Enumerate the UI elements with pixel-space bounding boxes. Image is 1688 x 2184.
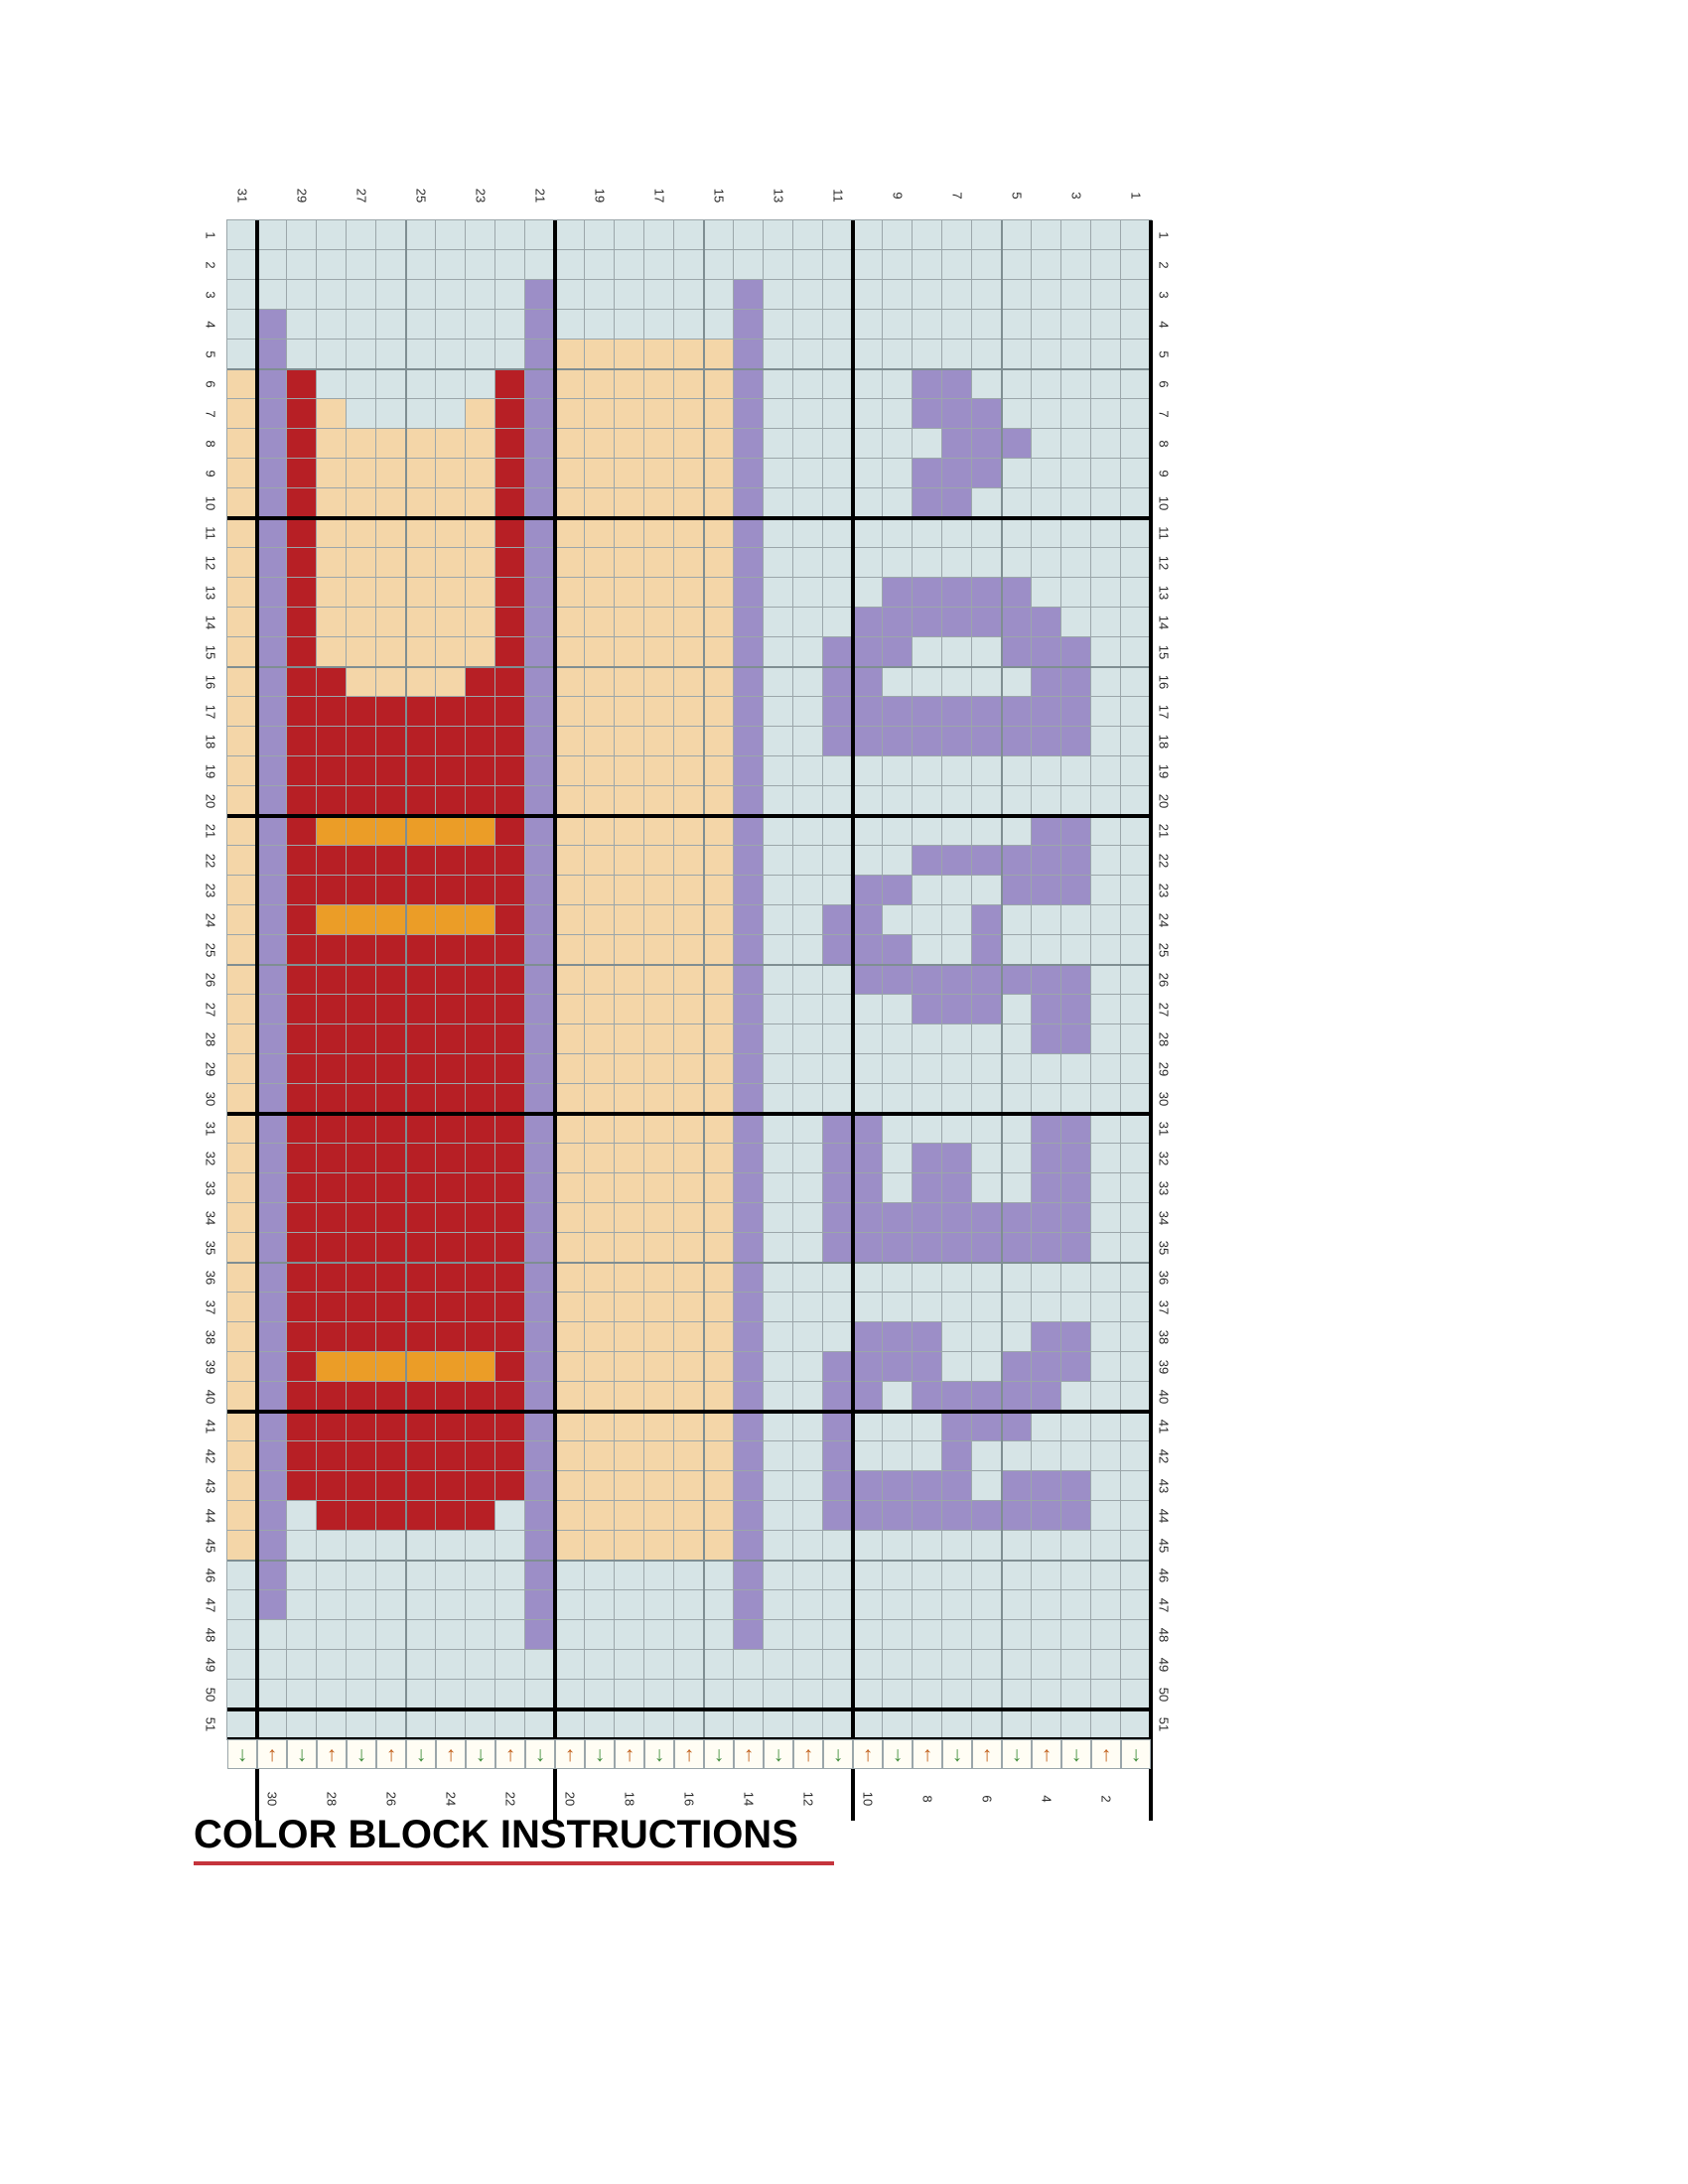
chart-cell-purple bbox=[853, 727, 883, 756]
chart-cell-purple bbox=[1061, 727, 1091, 756]
chart-cell-light-blue-background bbox=[1121, 250, 1151, 280]
chart-cell-purple bbox=[525, 905, 555, 935]
chart-cell-light-blue-background bbox=[883, 488, 913, 518]
chart-cell-light-blue-background bbox=[674, 1680, 704, 1709]
chart-cell-cream-peach bbox=[644, 1412, 674, 1441]
chart-cell-dark-red bbox=[287, 697, 317, 727]
chart-cell-cream-peach bbox=[615, 1114, 644, 1144]
chart-cell-dark-red bbox=[466, 965, 495, 995]
chart-cell-light-blue-background bbox=[823, 429, 853, 459]
chart-cell-purple bbox=[853, 1501, 883, 1531]
right-row-label: 10 bbox=[1157, 496, 1172, 510]
left-row-label: 31 bbox=[204, 1122, 218, 1136]
chart-cell-light-blue-background bbox=[972, 369, 1002, 399]
right-row-label: 21 bbox=[1157, 824, 1172, 838]
chart-cell-purple bbox=[823, 1382, 853, 1412]
chart-cell-purple bbox=[257, 1084, 287, 1114]
chart-cell-purple bbox=[1032, 1382, 1061, 1412]
chart-cell-light-blue-background bbox=[883, 340, 913, 369]
chart-cell-purple bbox=[972, 1412, 1002, 1441]
chart-cell-purple bbox=[883, 935, 913, 965]
chart-cell-light-blue-background bbox=[1121, 1590, 1151, 1620]
chart-cell-light-blue-background bbox=[913, 1084, 942, 1114]
chart-cell-light-blue-background bbox=[436, 250, 466, 280]
chart-cell-cream-peach bbox=[227, 1233, 257, 1263]
left-row-label: 29 bbox=[204, 1062, 218, 1076]
chart-cell-purple bbox=[913, 995, 942, 1024]
chart-cell-dark-red bbox=[406, 697, 436, 727]
chart-cell-cream-peach bbox=[644, 369, 674, 399]
chart-cell-purple bbox=[734, 1024, 764, 1054]
chart-cell-cream-peach bbox=[674, 518, 704, 548]
chart-cell-light-blue-background bbox=[764, 876, 793, 905]
chart-cell-light-blue-background bbox=[436, 1561, 466, 1590]
chart-cell-light-blue-background bbox=[764, 1412, 793, 1441]
chart-cell-light-blue-background bbox=[1061, 369, 1091, 399]
chart-cell-purple bbox=[1002, 429, 1032, 459]
chart-cell-cream-peach bbox=[615, 816, 644, 846]
chart-cell-cream-peach bbox=[704, 786, 734, 816]
chart-cell-purple bbox=[734, 340, 764, 369]
chart-cell-cream-peach bbox=[704, 1322, 734, 1352]
chart-cell-light-blue-background bbox=[942, 1680, 972, 1709]
chart-cell-dark-red bbox=[406, 1114, 436, 1144]
chart-cell-cream-peach bbox=[347, 578, 376, 608]
chart-cell-light-blue-background bbox=[913, 220, 942, 250]
left-row-label: 40 bbox=[204, 1390, 218, 1404]
chart-cell-light-blue-background bbox=[585, 1561, 615, 1590]
chart-cell-purple bbox=[1002, 1233, 1032, 1263]
chart-cell-light-blue-background bbox=[972, 1441, 1002, 1471]
chart-cell-light-blue-background bbox=[853, 488, 883, 518]
chart-cell-light-blue-background bbox=[347, 369, 376, 399]
chart-cell-light-blue-background bbox=[823, 578, 853, 608]
chart-cell-cream-peach bbox=[555, 518, 585, 548]
chart-cell-light-blue-background bbox=[1061, 1650, 1091, 1680]
chart-cell-light-blue-background bbox=[883, 995, 913, 1024]
chart-cell-light-blue-background bbox=[466, 220, 495, 250]
knit-direction-arrow-down-icon: ↓ bbox=[1002, 1739, 1032, 1769]
chart-cell-light-blue-background bbox=[436, 340, 466, 369]
chart-cell-light-blue-background bbox=[1091, 1054, 1121, 1084]
chart-cell-purple bbox=[734, 667, 764, 697]
chart-cell-cream-peach bbox=[674, 1293, 704, 1322]
chart-cell-light-blue-background bbox=[823, 1531, 853, 1561]
chart-cell-orange bbox=[466, 905, 495, 935]
chart-cell-purple bbox=[257, 1471, 287, 1501]
chart-cell-light-blue-background bbox=[913, 310, 942, 340]
knit-direction-arrow-down-icon: ↓ bbox=[585, 1739, 615, 1769]
chart-cell-light-blue-background bbox=[1121, 459, 1151, 488]
chart-cell-light-blue-background bbox=[913, 756, 942, 786]
chart-cell-purple bbox=[913, 846, 942, 876]
chart-cell-light-blue-background bbox=[227, 1709, 257, 1739]
chart-cell-light-blue-background bbox=[793, 1024, 823, 1054]
chart-cell-light-blue-background bbox=[1061, 429, 1091, 459]
chart-cell-light-blue-background bbox=[764, 697, 793, 727]
knit-direction-arrow-down-icon: ↓ bbox=[466, 1739, 495, 1769]
chart-cell-light-blue-background bbox=[823, 1263, 853, 1293]
chart-cell-light-blue-background bbox=[704, 1620, 734, 1650]
right-row-label: 26 bbox=[1157, 973, 1172, 987]
chart-cell-purple bbox=[823, 1501, 853, 1531]
chart-cell-light-blue-background bbox=[913, 429, 942, 459]
chart-cell-dark-red bbox=[347, 1263, 376, 1293]
chart-cell-cream-peach bbox=[615, 697, 644, 727]
chart-cell-purple bbox=[525, 876, 555, 905]
chart-cell-dark-red bbox=[495, 727, 525, 756]
chart-cell-cream-peach bbox=[674, 756, 704, 786]
chart-cell-orange bbox=[376, 905, 406, 935]
chart-cell-purple bbox=[734, 548, 764, 578]
grid-10-stitch-line bbox=[553, 220, 557, 1821]
chart-cell-dark-red bbox=[287, 369, 317, 399]
grid-10-row-line bbox=[227, 1410, 1151, 1414]
chart-cell-light-blue-background bbox=[793, 1501, 823, 1531]
chart-cell-purple bbox=[525, 399, 555, 429]
chart-cell-cream-peach bbox=[615, 1084, 644, 1114]
chart-cell-light-blue-background bbox=[644, 1620, 674, 1650]
chart-cell-dark-red bbox=[287, 905, 317, 935]
left-row-label: 17 bbox=[204, 705, 218, 719]
chart-cell-light-blue-background bbox=[972, 488, 1002, 518]
chart-cell-light-blue-background bbox=[764, 1024, 793, 1054]
chart-cell-dark-red bbox=[466, 667, 495, 697]
chart-cell-cream-peach bbox=[376, 578, 406, 608]
chart-cell-purple bbox=[257, 369, 287, 399]
right-row-label: 49 bbox=[1157, 1658, 1172, 1672]
chart-cell-cream-peach bbox=[674, 1531, 704, 1561]
chart-cell-light-blue-background bbox=[764, 1114, 793, 1144]
chart-cell-light-blue-background bbox=[1091, 1680, 1121, 1709]
chart-cell-cream-peach bbox=[585, 697, 615, 727]
chart-cell-light-blue-background bbox=[972, 250, 1002, 280]
chart-cell-cream-peach bbox=[704, 1412, 734, 1441]
chart-cell-purple bbox=[734, 1501, 764, 1531]
chart-cell-light-blue-background bbox=[1032, 1620, 1061, 1650]
chart-cell-cream-peach bbox=[704, 340, 734, 369]
chart-cell-cream-peach bbox=[555, 1531, 585, 1561]
chart-cell-light-blue-background bbox=[1002, 1173, 1032, 1203]
chart-cell-light-blue-background bbox=[1061, 548, 1091, 578]
chart-cell-purple bbox=[853, 637, 883, 667]
chart-cell-cream-peach bbox=[555, 1501, 585, 1531]
chart-cell-light-blue-background bbox=[764, 727, 793, 756]
chart-cell-purple bbox=[1002, 1382, 1032, 1412]
chart-cell-purple bbox=[257, 637, 287, 667]
chart-cell-light-blue-background bbox=[466, 1590, 495, 1620]
chart-cell-light-blue-background bbox=[1091, 1650, 1121, 1680]
chart-cell-cream-peach bbox=[376, 608, 406, 637]
left-row-label: 45 bbox=[204, 1539, 218, 1553]
chart-cell-purple bbox=[257, 488, 287, 518]
chart-cell-purple bbox=[257, 905, 287, 935]
chart-cell-dark-red bbox=[376, 1203, 406, 1233]
chart-cell-cream-peach bbox=[674, 876, 704, 905]
chart-cell-light-blue-background bbox=[734, 1709, 764, 1739]
chart-cell-cream-peach bbox=[644, 1352, 674, 1382]
chart-cell-cream-peach bbox=[704, 1293, 734, 1322]
chart-cell-purple bbox=[734, 578, 764, 608]
chart-cell-cream-peach bbox=[585, 935, 615, 965]
chart-cell-cream-peach bbox=[644, 727, 674, 756]
chart-cell-cream-peach bbox=[347, 488, 376, 518]
chart-cell-cream-peach bbox=[317, 548, 347, 578]
top-stitch-label: 17 bbox=[652, 189, 667, 203]
right-row-label: 4 bbox=[1157, 321, 1172, 328]
chart-cell-light-blue-background bbox=[1002, 1084, 1032, 1114]
chart-cell-dark-red bbox=[287, 1471, 317, 1501]
chart-cell-light-blue-background bbox=[1002, 1561, 1032, 1590]
chart-cell-light-blue-background bbox=[853, 1412, 883, 1441]
chart-cell-purple bbox=[734, 1173, 764, 1203]
chart-cell-dark-red bbox=[495, 369, 525, 399]
chart-cell-orange bbox=[436, 905, 466, 935]
chart-cell-cream-peach bbox=[615, 756, 644, 786]
chart-cell-light-blue-background bbox=[1002, 786, 1032, 816]
chart-cell-light-blue-background bbox=[913, 1590, 942, 1620]
bottom-stitch-label: 20 bbox=[563, 1792, 578, 1806]
right-row-label: 28 bbox=[1157, 1032, 1172, 1046]
chart-cell-light-blue-background bbox=[1032, 756, 1061, 786]
chart-cell-purple bbox=[823, 637, 853, 667]
chart-cell-light-blue-background bbox=[764, 280, 793, 310]
chart-cell-light-blue-background bbox=[615, 1709, 644, 1739]
left-row-label: 30 bbox=[204, 1092, 218, 1106]
chart-cell-light-blue-background bbox=[406, 250, 436, 280]
chart-cell-light-blue-background bbox=[1061, 1293, 1091, 1322]
chart-cell-cream-peach bbox=[227, 1471, 257, 1501]
right-row-label: 32 bbox=[1157, 1152, 1172, 1165]
chart-cell-light-blue-background bbox=[704, 1590, 734, 1620]
chart-cell-purple bbox=[972, 399, 1002, 429]
chart-cell-light-blue-background bbox=[317, 310, 347, 340]
chart-cell-dark-red bbox=[287, 1144, 317, 1173]
chart-cell-light-blue-background bbox=[644, 250, 674, 280]
chart-cell-dark-red bbox=[347, 1382, 376, 1412]
chart-cell-purple bbox=[1032, 1203, 1061, 1233]
chart-cell-light-blue-background bbox=[972, 1054, 1002, 1084]
chart-cell-light-blue-background bbox=[764, 1501, 793, 1531]
left-row-label: 48 bbox=[204, 1628, 218, 1642]
chart-cell-purple bbox=[823, 1173, 853, 1203]
chart-cell-dark-red bbox=[287, 429, 317, 459]
chart-cell-light-blue-background bbox=[1091, 1531, 1121, 1561]
chart-cell-light-blue-background bbox=[1121, 608, 1151, 637]
chart-cell-light-blue-background bbox=[1032, 578, 1061, 608]
chart-cell-purple bbox=[1061, 816, 1091, 846]
grid-5-row-line bbox=[227, 666, 1151, 668]
chart-cell-light-blue-background bbox=[466, 1531, 495, 1561]
chart-cell-purple bbox=[257, 786, 287, 816]
chart-cell-light-blue-background bbox=[1091, 816, 1121, 846]
chart-cell-light-blue-background bbox=[913, 1531, 942, 1561]
chart-cell-purple bbox=[1032, 1471, 1061, 1501]
chart-cell-dark-red bbox=[436, 1471, 466, 1501]
chart-cell-light-blue-background bbox=[972, 1709, 1002, 1739]
chart-cell-light-blue-background bbox=[1061, 1382, 1091, 1412]
chart-cell-cream-peach bbox=[227, 1024, 257, 1054]
chart-cell-light-blue-background bbox=[793, 816, 823, 846]
chart-cell-light-blue-background bbox=[793, 429, 823, 459]
chart-cell-light-blue-background bbox=[1091, 250, 1121, 280]
chart-cell-light-blue-background bbox=[644, 220, 674, 250]
bottom-stitch-label: 30 bbox=[265, 1792, 280, 1806]
chart-cell-purple bbox=[853, 1382, 883, 1412]
chart-cell-dark-red bbox=[495, 637, 525, 667]
chart-cell-cream-peach bbox=[227, 1531, 257, 1561]
chart-cell-light-blue-background bbox=[585, 250, 615, 280]
chart-cell-dark-red bbox=[347, 1024, 376, 1054]
chart-cell-cream-peach bbox=[555, 1263, 585, 1293]
chart-cell-light-blue-background bbox=[406, 280, 436, 310]
chart-cell-light-blue-background bbox=[883, 369, 913, 399]
chart-cell-purple bbox=[1061, 1352, 1091, 1382]
chart-cell-dark-red bbox=[466, 1233, 495, 1263]
chart-cell-purple bbox=[257, 578, 287, 608]
chart-cell-purple bbox=[853, 935, 883, 965]
chart-cell-light-blue-background bbox=[823, 220, 853, 250]
chart-cell-light-blue-background bbox=[1002, 369, 1032, 399]
chart-cell-light-blue-background bbox=[227, 1620, 257, 1650]
chart-cell-dark-red bbox=[406, 1412, 436, 1441]
chart-cell-purple bbox=[853, 1203, 883, 1233]
chart-cell-dark-red bbox=[406, 1293, 436, 1322]
chart-cell-light-blue-background bbox=[1091, 846, 1121, 876]
chart-cell-light-blue-background bbox=[972, 280, 1002, 310]
chart-cell-light-blue-background bbox=[1121, 637, 1151, 667]
chart-cell-cream-peach bbox=[555, 756, 585, 786]
chart-cell-cream-peach bbox=[585, 340, 615, 369]
chart-cell-dark-red bbox=[406, 1382, 436, 1412]
chart-cell-light-blue-background bbox=[1061, 1709, 1091, 1739]
knit-direction-arrow-down-icon: ↓ bbox=[287, 1739, 317, 1769]
chart-cell-purple bbox=[913, 459, 942, 488]
chart-cell-light-blue-background bbox=[674, 1709, 704, 1739]
chart-cell-dark-red bbox=[495, 1382, 525, 1412]
chart-cell-cream-peach bbox=[704, 876, 734, 905]
chart-cell-light-blue-background bbox=[793, 548, 823, 578]
chart-cell-light-blue-background bbox=[1091, 1352, 1121, 1382]
right-row-label: 18 bbox=[1157, 735, 1172, 749]
chart-cell-light-blue-background bbox=[495, 220, 525, 250]
chart-cell-cream-peach bbox=[227, 727, 257, 756]
chart-cell-cream-peach bbox=[704, 637, 734, 667]
chart-cell-purple bbox=[257, 310, 287, 340]
chart-cell-light-blue-background bbox=[287, 1590, 317, 1620]
chart-cell-cream-peach bbox=[317, 518, 347, 548]
chart-cell-light-blue-background bbox=[793, 340, 823, 369]
chart-cell-purple bbox=[257, 846, 287, 876]
chart-cell-cream-peach bbox=[227, 667, 257, 697]
chart-cell-purple bbox=[883, 1501, 913, 1531]
chart-cell-light-blue-background bbox=[1091, 459, 1121, 488]
chart-cell-light-blue-background bbox=[823, 310, 853, 340]
chart-cell-purple bbox=[853, 1144, 883, 1173]
chart-cell-cream-peach bbox=[585, 1054, 615, 1084]
chart-cell-cream-peach bbox=[227, 459, 257, 488]
chart-cell-cream-peach bbox=[674, 786, 704, 816]
chart-cell-purple bbox=[972, 608, 1002, 637]
chart-cell-cream-peach bbox=[555, 727, 585, 756]
chart-cell-cream-peach bbox=[615, 369, 644, 399]
chart-cell-light-blue-background bbox=[764, 1352, 793, 1382]
chart-cell-dark-red bbox=[466, 1412, 495, 1441]
chart-cell-light-blue-background bbox=[317, 1650, 347, 1680]
chart-cell-cream-peach bbox=[674, 1114, 704, 1144]
chart-cell-light-blue-background bbox=[495, 340, 525, 369]
chart-cell-purple bbox=[257, 1561, 287, 1590]
bottom-stitch-label: 8 bbox=[920, 1795, 935, 1802]
chart-cell-purple bbox=[734, 1084, 764, 1114]
chart-cell-cream-peach bbox=[644, 1471, 674, 1501]
chart-cell-light-blue-background bbox=[317, 250, 347, 280]
chart-cell-light-blue-background bbox=[764, 1203, 793, 1233]
chart-cell-light-blue-background bbox=[913, 816, 942, 846]
top-stitch-label: 19 bbox=[593, 189, 608, 203]
left-row-label: 4 bbox=[204, 321, 218, 328]
chart-cell-light-blue-background bbox=[1061, 1590, 1091, 1620]
top-stitch-label: 25 bbox=[414, 189, 429, 203]
chart-cell-cream-peach bbox=[644, 608, 674, 637]
chart-cell-cream-peach bbox=[466, 488, 495, 518]
chart-cell-dark-red bbox=[406, 1501, 436, 1531]
chart-cell-light-blue-background bbox=[1002, 1293, 1032, 1322]
chart-cell-cream-peach bbox=[555, 340, 585, 369]
chart-cell-light-blue-background bbox=[972, 310, 1002, 340]
chart-cell-light-blue-background bbox=[793, 1352, 823, 1382]
chart-cell-cream-peach bbox=[674, 697, 704, 727]
chart-cell-light-blue-background bbox=[257, 1709, 287, 1739]
chart-cell-dark-red bbox=[376, 1054, 406, 1084]
chart-cell-dark-red bbox=[287, 608, 317, 637]
chart-cell-light-blue-background bbox=[376, 1531, 406, 1561]
chart-cell-cream-peach bbox=[644, 1024, 674, 1054]
chart-cell-dark-red bbox=[376, 1293, 406, 1322]
chart-cell-orange bbox=[376, 816, 406, 846]
chart-cell-dark-red bbox=[406, 1173, 436, 1203]
chart-cell-light-blue-background bbox=[1121, 727, 1151, 756]
chart-cell-purple bbox=[853, 608, 883, 637]
chart-cell-cream-peach bbox=[555, 578, 585, 608]
chart-cell-light-blue-background bbox=[1032, 220, 1061, 250]
chart-cell-orange bbox=[466, 1352, 495, 1382]
chart-cell-cream-peach bbox=[555, 876, 585, 905]
chart-cell-purple bbox=[257, 1293, 287, 1322]
chart-cell-cream-peach bbox=[585, 1531, 615, 1561]
chart-cell-purple bbox=[883, 727, 913, 756]
chart-cell-cream-peach bbox=[227, 905, 257, 935]
grid-10-row-line bbox=[227, 1112, 1151, 1116]
chart-cell-light-blue-background bbox=[644, 1709, 674, 1739]
chart-cell-light-blue-background bbox=[883, 220, 913, 250]
chart-cell-cream-peach bbox=[644, 876, 674, 905]
chart-cell-cream-peach bbox=[644, 637, 674, 667]
chart-cell-cream-peach bbox=[466, 459, 495, 488]
bottom-stitch-label: 26 bbox=[384, 1792, 399, 1806]
chart-cell-cream-peach bbox=[227, 548, 257, 578]
chart-cell-light-blue-background bbox=[555, 250, 585, 280]
chart-cell-light-blue-background bbox=[942, 220, 972, 250]
chart-cell-cream-peach bbox=[615, 846, 644, 876]
chart-cell-light-blue-background bbox=[1002, 1024, 1032, 1054]
chart-cell-cream-peach bbox=[615, 578, 644, 608]
right-row-label: 35 bbox=[1157, 1241, 1172, 1255]
chart-cell-cream-peach bbox=[615, 1024, 644, 1054]
chart-cell-light-blue-background bbox=[853, 1024, 883, 1054]
chart-cell-cream-peach bbox=[585, 965, 615, 995]
chart-cell-dark-red bbox=[376, 1382, 406, 1412]
